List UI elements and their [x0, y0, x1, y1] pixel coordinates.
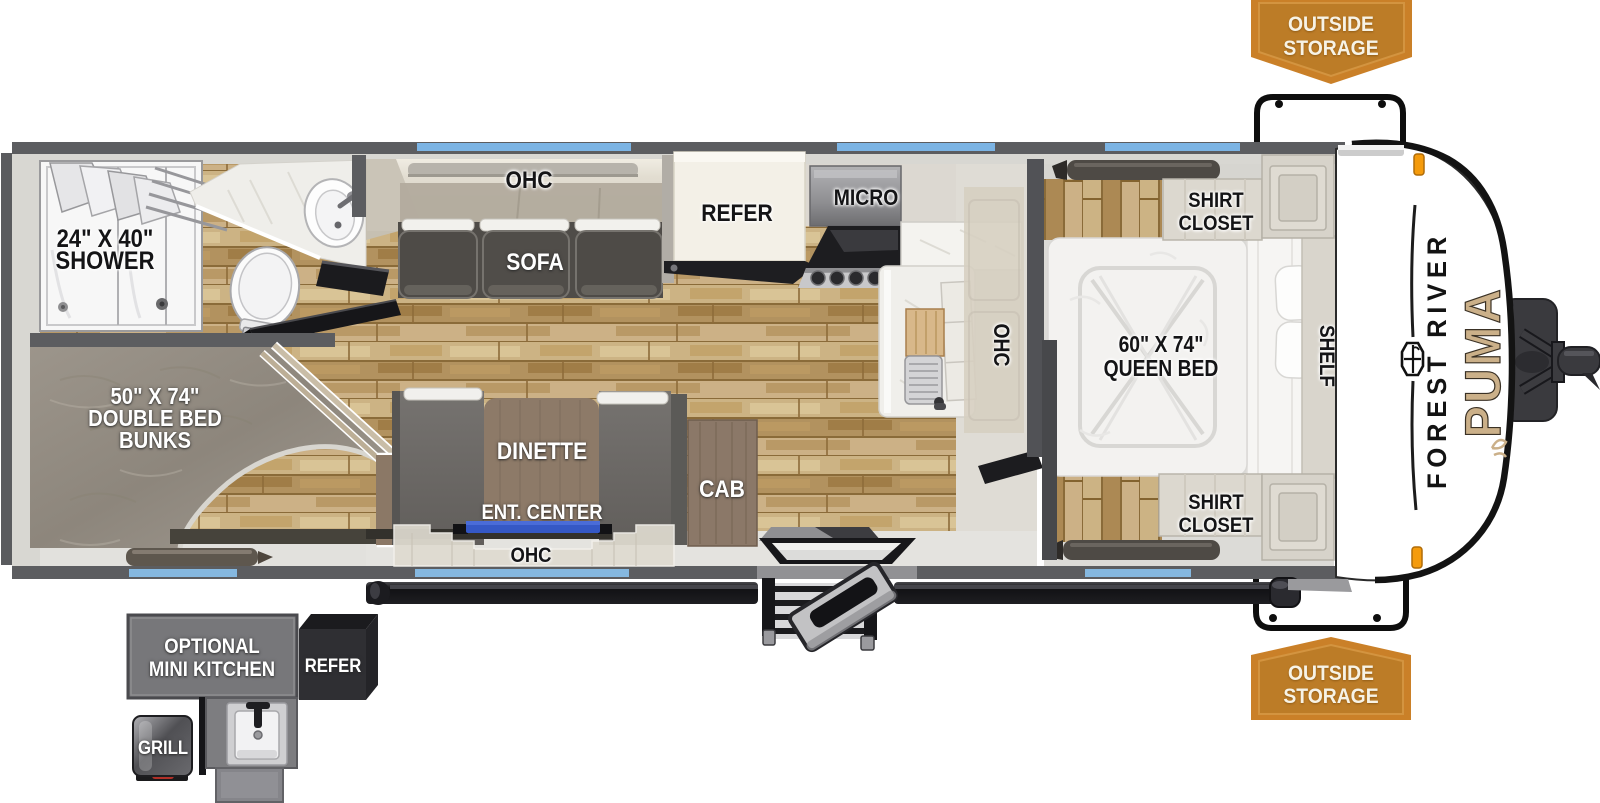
- svg-text:STORAGE: STORAGE: [1283, 684, 1378, 708]
- svg-text:SHOWER: SHOWER: [56, 247, 155, 275]
- svg-text:SHIRT: SHIRT: [1188, 189, 1243, 212]
- svg-text:CAB: CAB: [699, 476, 745, 503]
- svg-text:REFER: REFER: [305, 655, 362, 676]
- svg-text:OPTIONAL: OPTIONAL: [164, 635, 259, 658]
- svg-text:OHC: OHC: [989, 323, 1013, 366]
- svg-text:GRILL: GRILL: [138, 737, 188, 758]
- svg-text:OUTSIDE: OUTSIDE: [1288, 12, 1374, 36]
- svg-text:PUMA: PUMA: [1456, 286, 1511, 437]
- svg-text:60" X 74": 60" X 74": [1119, 333, 1204, 358]
- svg-text:MICRO: MICRO: [834, 186, 899, 210]
- svg-text:CLOSET: CLOSET: [1179, 212, 1254, 235]
- svg-text:OUTSIDE: OUTSIDE: [1288, 661, 1374, 685]
- svg-text:QUEEN BED: QUEEN BED: [1104, 357, 1219, 382]
- svg-text:STORAGE: STORAGE: [1283, 36, 1378, 60]
- svg-text:ENT. CENTER: ENT. CENTER: [481, 501, 602, 524]
- svg-text:BUNKS: BUNKS: [119, 427, 191, 454]
- svg-text:SOFA: SOFA: [506, 249, 563, 276]
- svg-text:SHIRT: SHIRT: [1188, 491, 1243, 514]
- svg-text:FOREST RIVER: FOREST RIVER: [1421, 231, 1452, 489]
- svg-text:DINETTE: DINETTE: [497, 438, 587, 465]
- svg-text:OHC: OHC: [510, 544, 551, 567]
- svg-text:MINI KITCHEN: MINI KITCHEN: [149, 658, 275, 681]
- svg-text:SHELF: SHELF: [1315, 325, 1338, 387]
- svg-text:CLOSET: CLOSET: [1179, 514, 1254, 537]
- svg-text:OHC: OHC: [506, 167, 553, 194]
- svg-text:REFER: REFER: [701, 200, 773, 227]
